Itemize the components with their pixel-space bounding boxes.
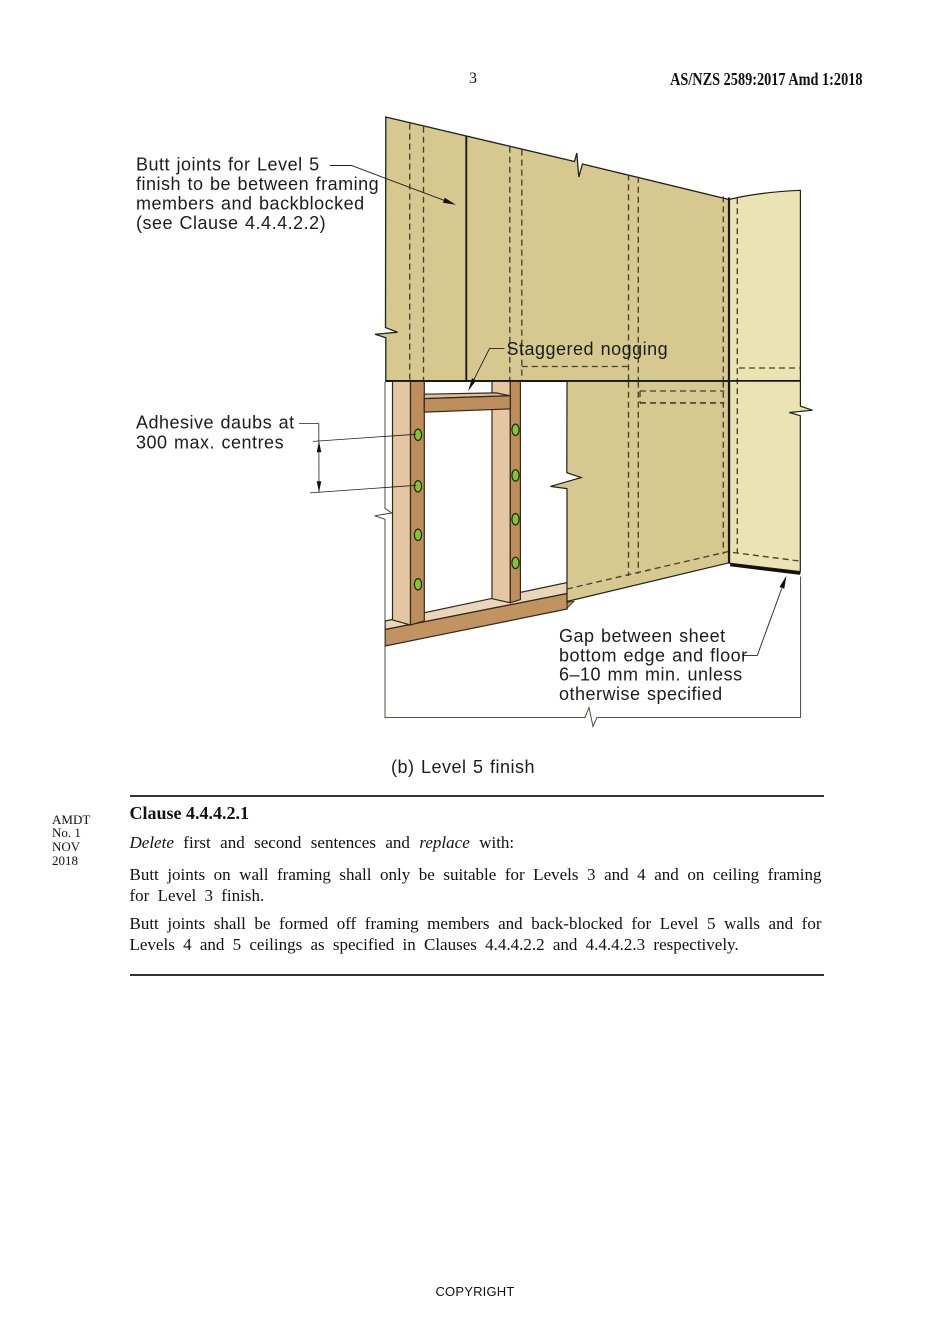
svg-text:(see Clause 4.4.4.2.2): (see Clause 4.4.4.2.2) xyxy=(136,213,326,233)
svg-text:bottom edge and floor: bottom edge and floor xyxy=(559,645,748,665)
svg-text:Gap between sheet: Gap between sheet xyxy=(559,626,726,646)
svg-text:finish to be between framing: finish to be between framing xyxy=(136,174,379,194)
svg-text:Staggered nogging: Staggered nogging xyxy=(507,339,669,359)
svg-text:Adhesive daubs at: Adhesive daubs at xyxy=(136,413,295,433)
svg-text:300 max. centres: 300 max. centres xyxy=(136,433,284,453)
svg-text:Butt joints for Level 5: Butt joints for Level 5 xyxy=(136,155,320,175)
svg-text:otherwise specified: otherwise specified xyxy=(559,684,723,704)
svg-text:members and backblocked: members and backblocked xyxy=(136,194,365,214)
svg-text:6–10 mm min. unless: 6–10 mm min. unless xyxy=(559,665,743,685)
